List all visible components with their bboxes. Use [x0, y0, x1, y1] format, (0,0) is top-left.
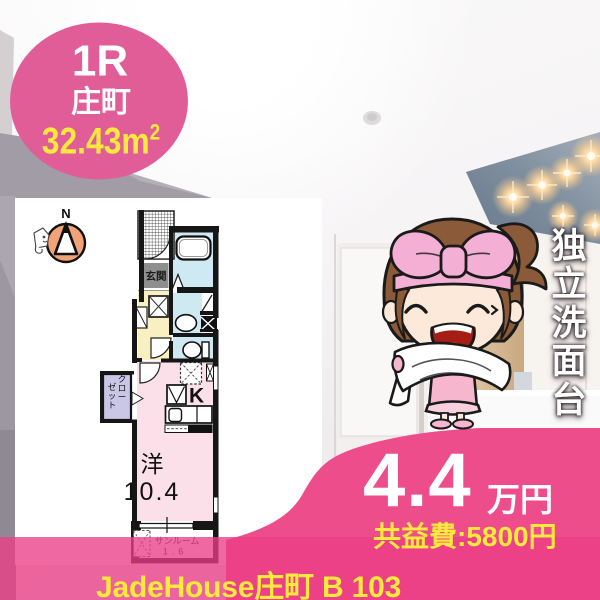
svg-text:32.43m2: 32.43m2	[42, 120, 160, 162]
svg-text:庄町: 庄町	[71, 85, 131, 119]
svg-text:1R: 1R	[72, 37, 128, 86]
